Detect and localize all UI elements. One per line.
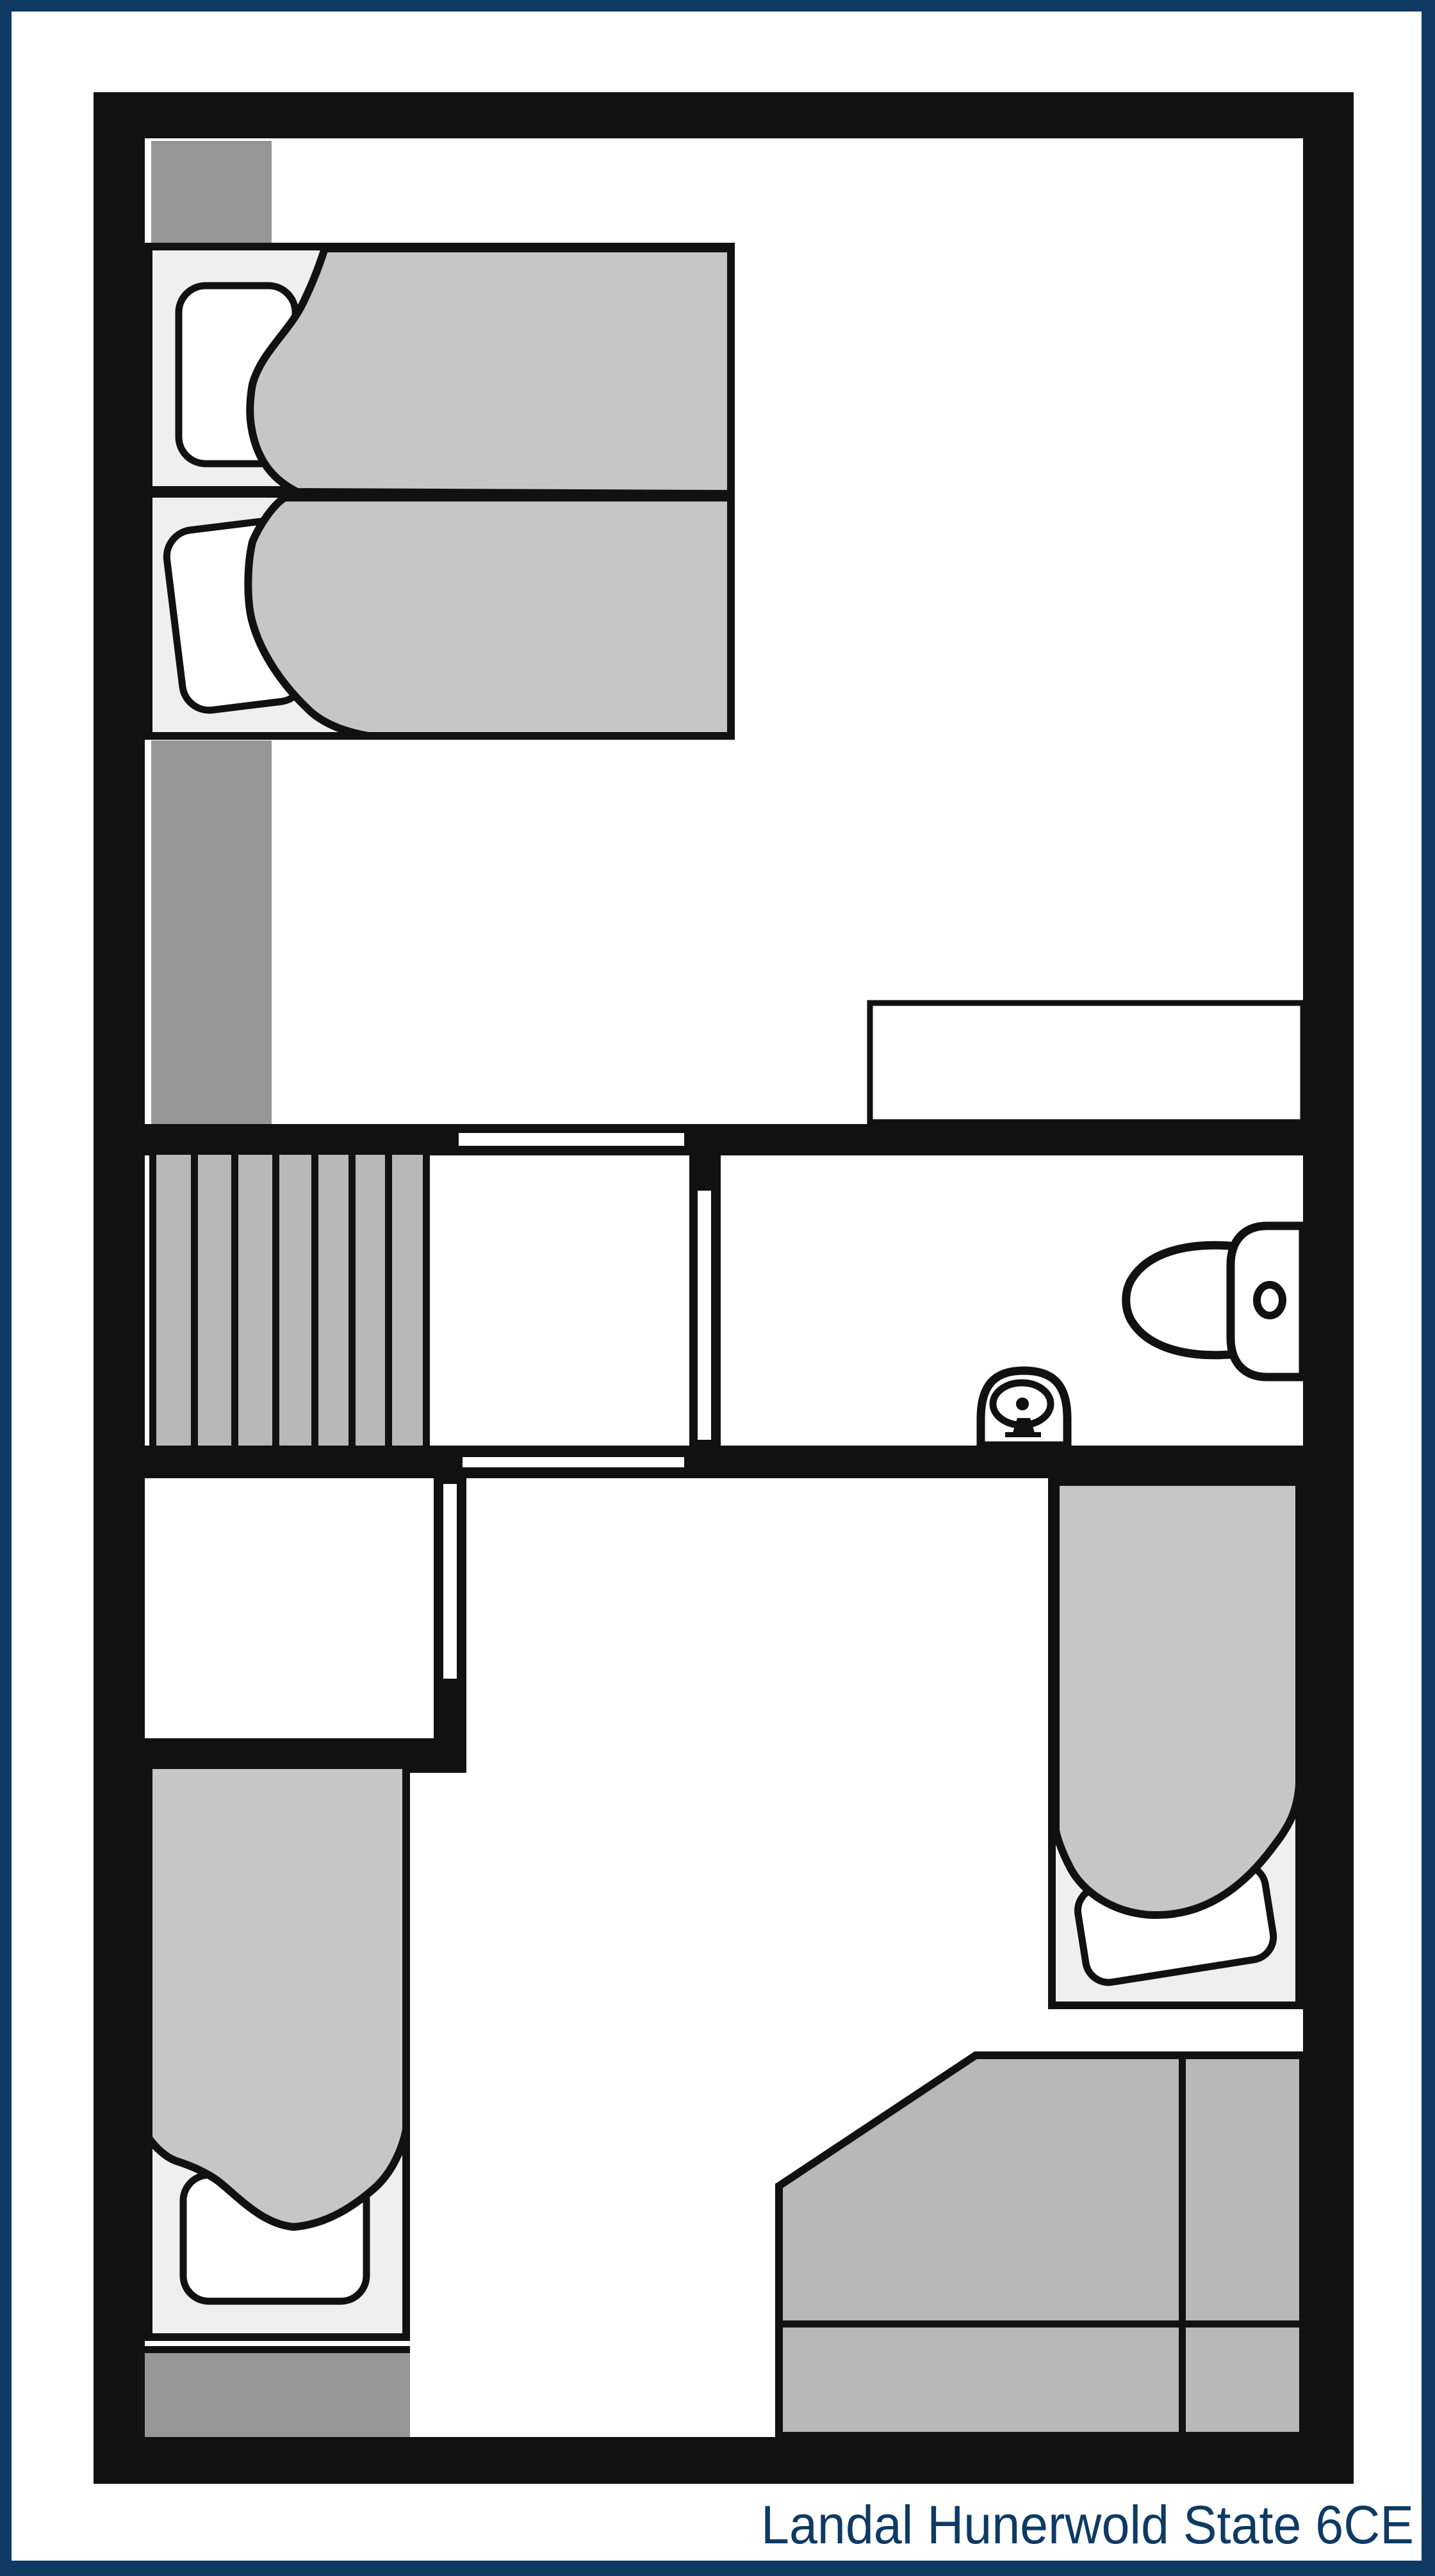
svg-text:Landal Hunerwold State 6CE: Landal Hunerwold State 6CE <box>761 2495 1414 2555</box>
